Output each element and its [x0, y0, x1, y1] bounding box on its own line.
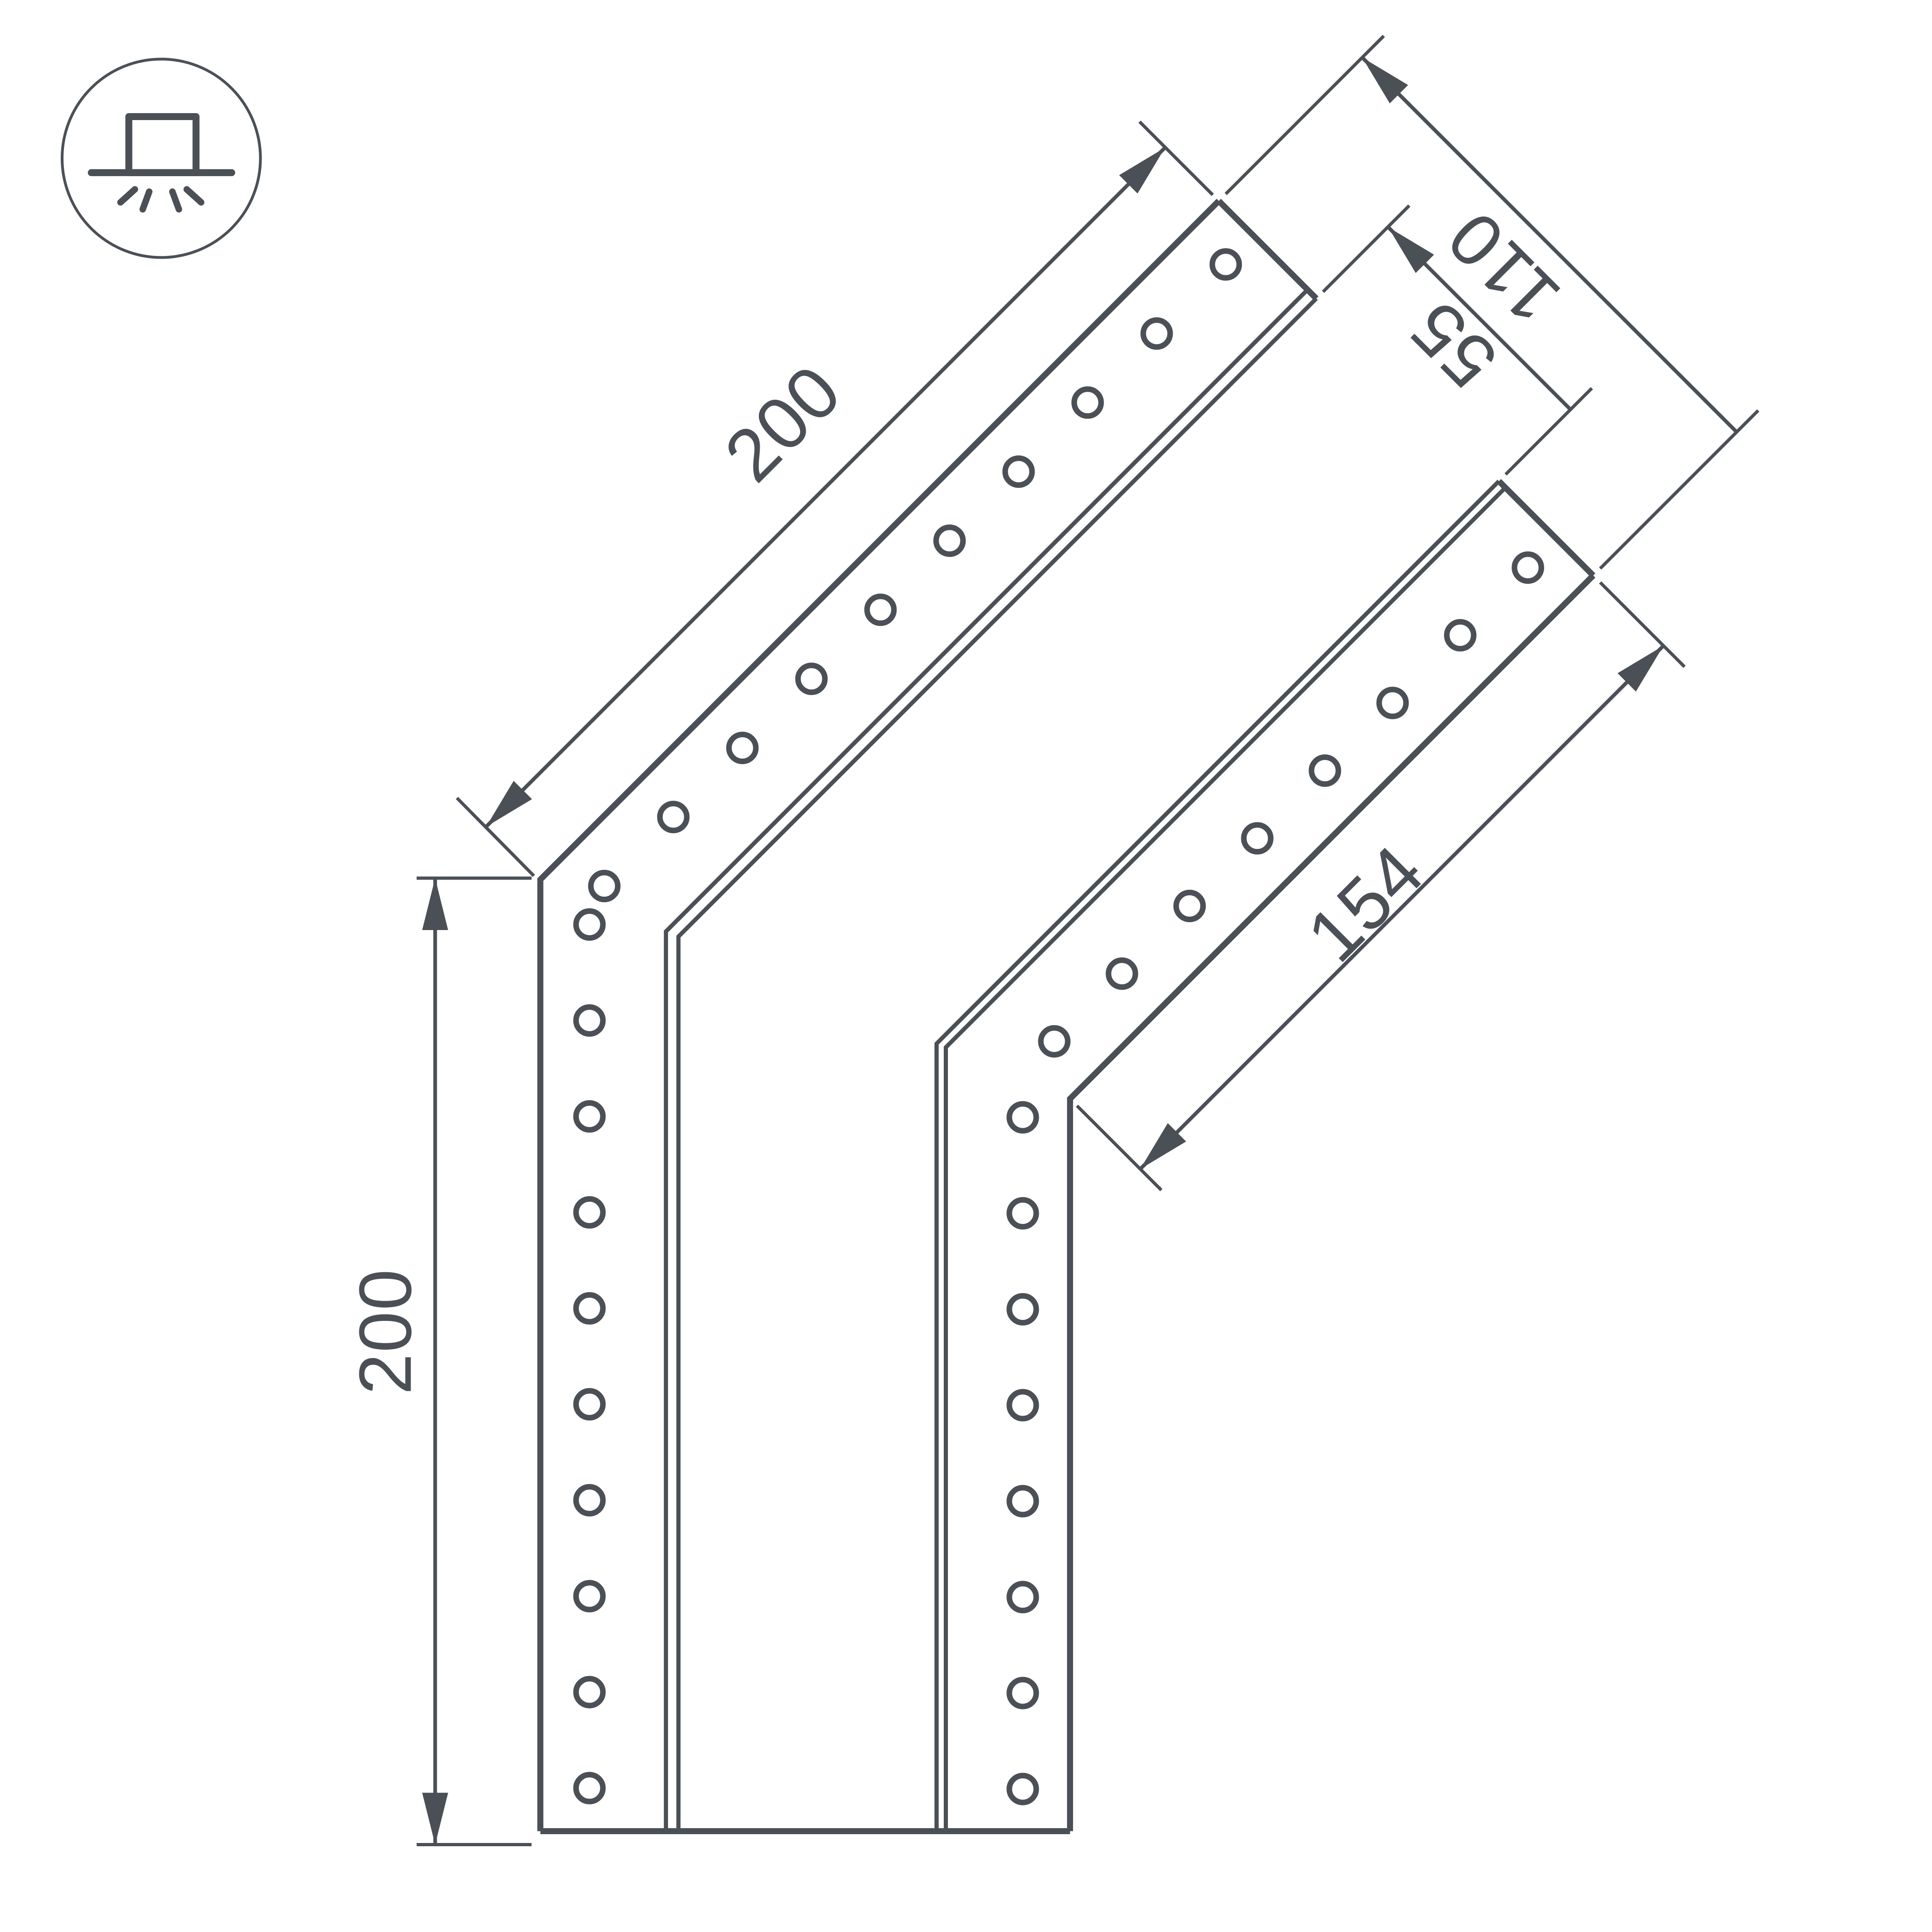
- outer-edge: [540, 201, 1219, 1831]
- mounting-hole: [1143, 320, 1170, 347]
- mounting-hole: [1074, 389, 1101, 416]
- right-wall-line-1: [936, 481, 1499, 1831]
- mounting-holes: [576, 251, 1541, 1802]
- mounting-hole: [576, 1007, 603, 1034]
- mounting-hole: [1009, 1488, 1036, 1515]
- mounting-hole: [576, 1391, 603, 1418]
- mounting-hole: [1009, 1296, 1036, 1323]
- dimension-value-vertical-leg: 200: [343, 1268, 426, 1395]
- mounting-hole: [576, 1295, 603, 1322]
- dimension-inner-diagonal: 154: [1077, 582, 1684, 1190]
- surface-mounted-luminaire-icon: [62, 59, 260, 257]
- mounting-hole: [1005, 458, 1032, 485]
- icon-circle-border: [62, 59, 260, 257]
- mounting-hole: [867, 596, 894, 623]
- mounting-hole: [729, 734, 756, 761]
- mounting-hole: [1447, 622, 1474, 649]
- extension-line: [457, 798, 534, 876]
- icon-light-rays: [120, 189, 201, 209]
- top-left-end-cut: [1219, 201, 1316, 298]
- dimension-line: [1362, 57, 1736, 432]
- mounting-hole: [1176, 893, 1203, 919]
- mounting-hole: [591, 873, 617, 899]
- extension-line: [1600, 410, 1758, 568]
- mounting-hole: [1041, 1028, 1068, 1055]
- mounting-hole: [1009, 1200, 1036, 1227]
- arrowhead: [422, 878, 448, 930]
- mounting-hole: [660, 803, 686, 830]
- mounting-hole: [1514, 554, 1541, 581]
- dimension-value-diagonal-leg: 200: [708, 349, 857, 497]
- extension-line: [1506, 388, 1592, 474]
- drawing-canvas: 200 200 154 110 55: [0, 0, 1932, 1932]
- mounting-hole: [576, 1775, 603, 1802]
- mounting-hole: [1009, 1104, 1036, 1131]
- mounting-hole: [576, 1199, 603, 1226]
- profile-outline: [540, 201, 1593, 1831]
- mounting-hole: [1009, 1392, 1036, 1419]
- left-wall-line-2: [678, 299, 1316, 1831]
- corner-connector-technical-drawing: 200 200 154 110 55: [0, 0, 1932, 1932]
- right-wall-line-2: [946, 488, 1505, 1831]
- mounting-hole: [576, 1583, 603, 1610]
- mounting-hole: [1244, 825, 1271, 852]
- mounting-hole: [576, 1487, 603, 1514]
- left-wall-line-1: [666, 290, 1307, 1831]
- dimension-vertical-leg: 200: [343, 878, 531, 1844]
- arrowhead: [422, 1793, 448, 1845]
- mounting-hole: [1311, 757, 1338, 784]
- mounting-hole: [936, 527, 963, 554]
- mounting-hole: [1009, 1776, 1036, 1803]
- mounting-hole: [798, 665, 825, 692]
- mounting-hole: [1379, 689, 1406, 716]
- extension-line: [1600, 582, 1684, 667]
- extension-line: [1323, 205, 1409, 292]
- icon-fixture-square: [128, 116, 196, 172]
- extension-line: [1077, 1106, 1161, 1190]
- mounting-hole: [576, 1679, 603, 1706]
- mounting-hole: [1009, 1584, 1036, 1611]
- mounting-hole: [1212, 251, 1239, 278]
- mounting-hole: [576, 1103, 603, 1130]
- dimension-line: [486, 147, 1165, 827]
- mounting-hole: [1009, 1680, 1036, 1707]
- mounting-hole: [576, 911, 603, 938]
- inner-edge: [1070, 575, 1593, 1831]
- mounting-hole: [1108, 960, 1135, 987]
- extension-line: [1226, 36, 1384, 194]
